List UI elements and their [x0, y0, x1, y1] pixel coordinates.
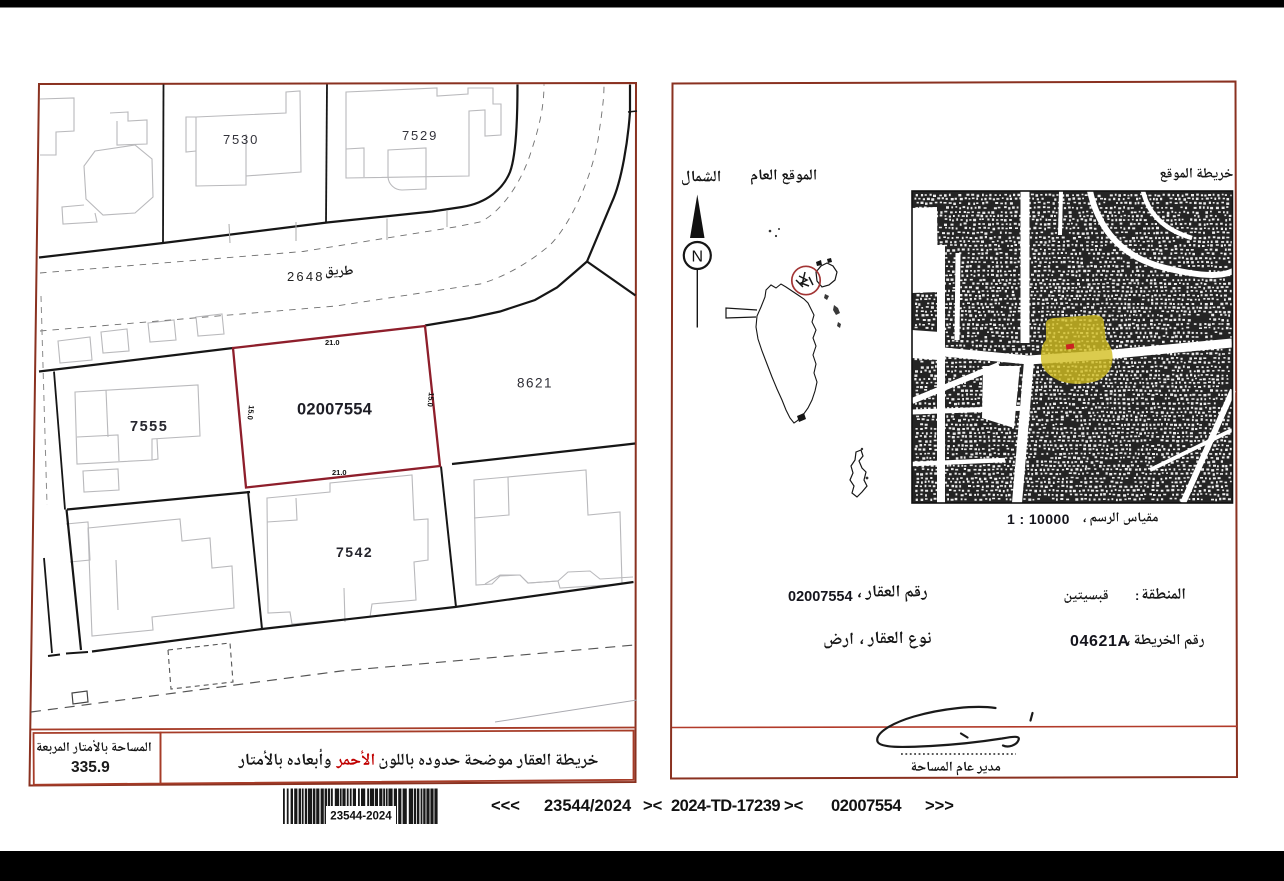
- svg-text:2648: 2648: [287, 269, 325, 284]
- svg-text:<<<: <<<: [491, 797, 520, 815]
- svg-text:7530: 7530: [223, 132, 259, 147]
- svg-text:15.0: 15.0: [425, 392, 435, 407]
- svg-text:15.0: 15.0: [245, 405, 255, 420]
- svg-text:04621A: 04621A: [1070, 633, 1130, 650]
- svg-text:23544-2024: 23544-2024: [330, 811, 392, 823]
- svg-text:N: N: [692, 249, 704, 266]
- svg-text:7542: 7542: [336, 544, 373, 560]
- svg-text:335.9: 335.9: [71, 759, 110, 776]
- svg-text:2024-TD-17239: 2024-TD-17239: [671, 797, 780, 815]
- svg-text:23544/2024: 23544/2024: [544, 797, 632, 815]
- svg-text:21.0: 21.0: [325, 338, 340, 347]
- svg-text:21.0: 21.0: [332, 468, 347, 477]
- svg-text:8621: 8621: [517, 376, 553, 391]
- svg-text:>>>: >>>: [925, 797, 954, 815]
- svg-text:02007554: 02007554: [788, 589, 853, 605]
- svg-text:1 : 10000: 1 : 10000: [1007, 511, 1070, 527]
- svg-text:7529: 7529: [402, 128, 438, 143]
- svg-text:02007554: 02007554: [297, 401, 373, 419]
- svg-text:02007554: 02007554: [831, 797, 902, 815]
- svg-text:7555: 7555: [130, 419, 168, 435]
- svg-text:><: ><: [784, 797, 803, 815]
- svg-text:><: ><: [643, 797, 662, 815]
- svg-text::: :: [1135, 588, 1139, 603]
